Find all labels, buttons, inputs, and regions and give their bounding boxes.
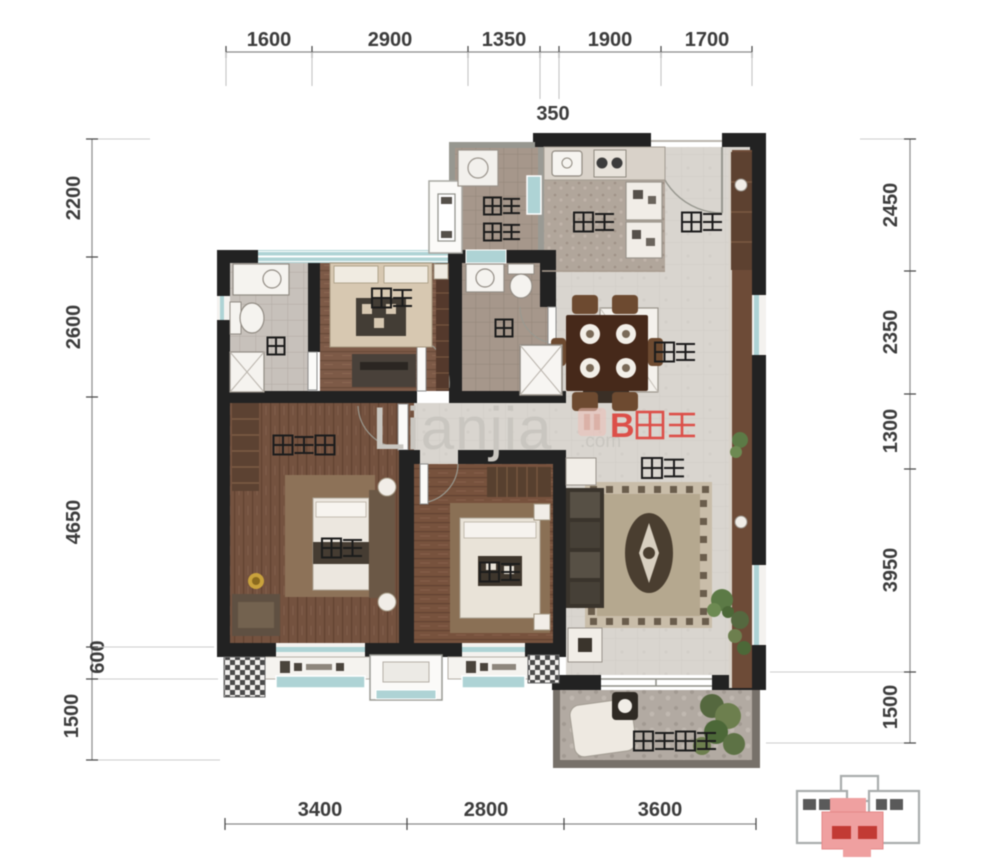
- svg-text:2600: 2600: [63, 305, 85, 350]
- svg-text:1500: 1500: [880, 685, 902, 730]
- svg-text:1500: 1500: [61, 694, 83, 739]
- svg-text:600: 600: [87, 640, 109, 673]
- svg-text:2200: 2200: [63, 176, 85, 221]
- svg-text:350: 350: [536, 103, 569, 125]
- svg-text:2900: 2900: [368, 29, 413, 51]
- svg-text:Lianjia: Lianjia: [372, 395, 552, 462]
- svg-text:1700: 1700: [685, 29, 730, 51]
- svg-text:2800: 2800: [464, 799, 509, 821]
- svg-text:2450: 2450: [880, 183, 902, 228]
- svg-text:1600: 1600: [247, 29, 292, 51]
- svg-text:4650: 4650: [63, 500, 85, 545]
- svg-text:3950: 3950: [880, 548, 902, 593]
- svg-text:3400: 3400: [298, 799, 343, 821]
- svg-text:B: B: [610, 407, 635, 445]
- svg-text:1300: 1300: [880, 409, 902, 454]
- svg-text:1900: 1900: [588, 29, 633, 51]
- svg-text:1350: 1350: [482, 29, 527, 51]
- svg-text:2350: 2350: [880, 310, 902, 355]
- svg-text:3600: 3600: [638, 799, 683, 821]
